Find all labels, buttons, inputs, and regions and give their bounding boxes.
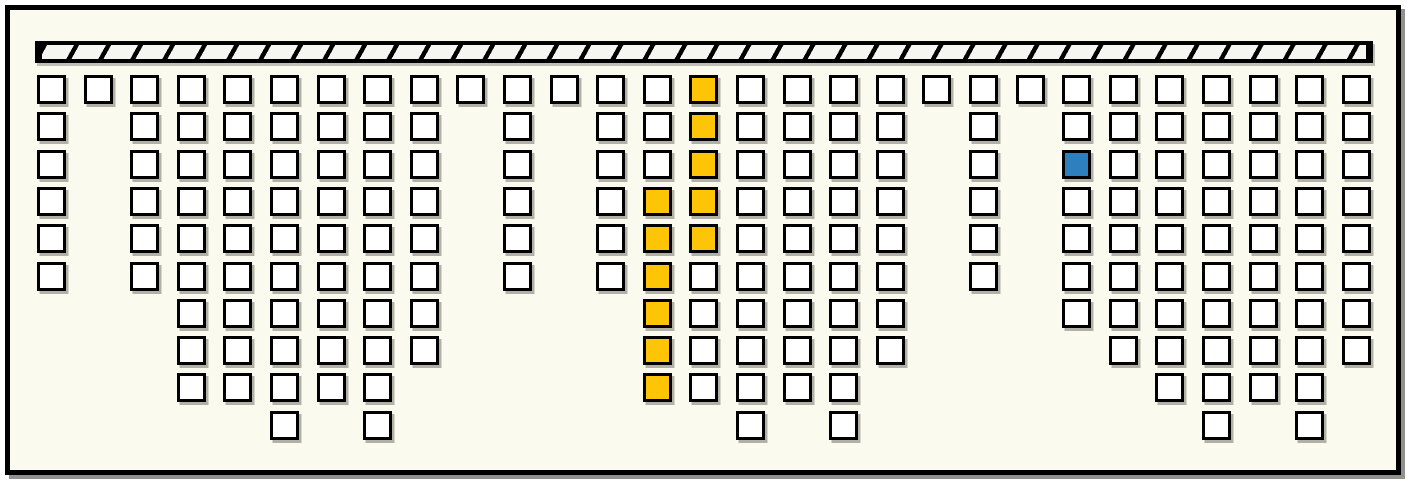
cell — [503, 187, 532, 216]
cell — [783, 224, 812, 253]
cell — [223, 299, 252, 328]
cell — [37, 262, 66, 291]
cell — [1295, 224, 1324, 253]
cell — [503, 224, 532, 253]
cell — [1062, 112, 1091, 141]
cell — [223, 150, 252, 179]
cell — [1202, 411, 1231, 440]
cell — [1109, 112, 1138, 141]
cell — [783, 262, 812, 291]
cell — [317, 187, 346, 216]
cell — [130, 150, 159, 179]
cell — [177, 112, 206, 141]
cell — [1295, 262, 1324, 291]
cell — [1155, 187, 1184, 216]
cell — [223, 187, 252, 216]
cell — [270, 411, 299, 440]
cell — [829, 299, 858, 328]
cell — [363, 262, 392, 291]
cell — [1109, 150, 1138, 179]
cell — [969, 75, 998, 104]
cell — [130, 187, 159, 216]
cell — [1155, 224, 1184, 253]
cell — [783, 373, 812, 402]
cell — [876, 262, 905, 291]
cell — [363, 187, 392, 216]
cell — [1155, 262, 1184, 291]
cell — [783, 150, 812, 179]
cell — [1295, 187, 1324, 216]
cell — [37, 224, 66, 253]
cell — [1062, 299, 1091, 328]
cell — [1342, 75, 1371, 104]
cell — [37, 75, 66, 104]
cell — [37, 112, 66, 141]
cell — [503, 262, 532, 291]
cell — [1202, 75, 1231, 104]
cell — [130, 112, 159, 141]
cell — [317, 150, 346, 179]
cell — [1295, 299, 1324, 328]
cell — [270, 224, 299, 253]
cell — [876, 299, 905, 328]
cell — [1109, 336, 1138, 365]
cell — [829, 75, 858, 104]
cell — [1342, 112, 1371, 141]
cell — [1202, 373, 1231, 402]
cell — [829, 150, 858, 179]
cell — [1295, 411, 1324, 440]
cell — [1295, 336, 1324, 365]
cell-grid — [0, 0, 1408, 483]
cell — [270, 373, 299, 402]
cell — [1155, 373, 1184, 402]
cell — [270, 187, 299, 216]
cell — [783, 112, 812, 141]
cell — [37, 187, 66, 216]
cell — [177, 75, 206, 104]
cell — [223, 75, 252, 104]
cell — [736, 75, 765, 104]
cell-highlight-yellow — [689, 150, 718, 179]
cell — [969, 262, 998, 291]
cell — [783, 187, 812, 216]
cell — [1249, 150, 1278, 179]
cell — [969, 224, 998, 253]
cell — [1249, 224, 1278, 253]
cell — [1342, 336, 1371, 365]
cell — [829, 336, 858, 365]
cell-highlight-yellow — [643, 373, 672, 402]
cell-highlight-yellow — [689, 224, 718, 253]
cell — [596, 262, 625, 291]
cell — [596, 75, 625, 104]
cell — [177, 150, 206, 179]
cell — [130, 262, 159, 291]
cell — [550, 75, 579, 104]
cell — [736, 299, 765, 328]
cell — [503, 75, 532, 104]
cell — [270, 262, 299, 291]
cell — [363, 373, 392, 402]
cell — [829, 411, 858, 440]
cell — [969, 187, 998, 216]
cell — [1062, 75, 1091, 104]
cell — [922, 75, 951, 104]
cell — [1249, 75, 1278, 104]
cell — [969, 112, 998, 141]
cell — [223, 373, 252, 402]
cell — [317, 75, 346, 104]
cell — [130, 75, 159, 104]
cell — [643, 150, 672, 179]
cell — [1249, 336, 1278, 365]
cell — [456, 75, 485, 104]
cell-highlight-yellow — [689, 112, 718, 141]
cell — [270, 75, 299, 104]
cell — [643, 75, 672, 104]
cell — [783, 299, 812, 328]
cell — [363, 336, 392, 365]
cell — [736, 224, 765, 253]
cell — [410, 187, 439, 216]
cell — [1062, 187, 1091, 216]
cell — [643, 112, 672, 141]
cell-highlight-yellow — [643, 187, 672, 216]
cell — [1249, 187, 1278, 216]
cell — [177, 299, 206, 328]
cell — [410, 299, 439, 328]
cell — [689, 336, 718, 365]
cell — [1155, 75, 1184, 104]
cell — [1295, 75, 1324, 104]
cell — [1202, 150, 1231, 179]
cell — [37, 150, 66, 179]
cell — [736, 336, 765, 365]
cell — [829, 224, 858, 253]
cell — [969, 150, 998, 179]
cell-highlight-blue — [1062, 150, 1091, 179]
cell — [1202, 187, 1231, 216]
cell — [829, 112, 858, 141]
cell — [829, 262, 858, 291]
cell — [783, 75, 812, 104]
cell — [317, 336, 346, 365]
cell — [596, 112, 625, 141]
cell — [736, 373, 765, 402]
cell — [363, 411, 392, 440]
cell — [410, 150, 439, 179]
cell — [736, 112, 765, 141]
cell — [876, 336, 905, 365]
cell — [177, 262, 206, 291]
cell-highlight-yellow — [689, 75, 718, 104]
cell — [177, 187, 206, 216]
cell — [1342, 299, 1371, 328]
cell — [1342, 187, 1371, 216]
cell — [1295, 112, 1324, 141]
cell — [270, 299, 299, 328]
cell — [177, 336, 206, 365]
cell — [876, 187, 905, 216]
cell — [1249, 299, 1278, 328]
cell — [1016, 75, 1045, 104]
cell — [1109, 224, 1138, 253]
cell — [1295, 150, 1324, 179]
cell — [317, 224, 346, 253]
cell-highlight-yellow — [689, 187, 718, 216]
cell — [736, 262, 765, 291]
cell — [1062, 224, 1091, 253]
cell — [270, 336, 299, 365]
cell — [317, 112, 346, 141]
cell — [363, 150, 392, 179]
cell — [317, 373, 346, 402]
cell — [270, 150, 299, 179]
cell — [736, 150, 765, 179]
cell — [876, 75, 905, 104]
cell — [1155, 112, 1184, 141]
cell — [876, 224, 905, 253]
cell — [317, 299, 346, 328]
cell — [410, 262, 439, 291]
cell-highlight-yellow — [643, 336, 672, 365]
cell — [1202, 262, 1231, 291]
cell — [596, 150, 625, 179]
cell — [596, 187, 625, 216]
cell — [1202, 224, 1231, 253]
cell — [689, 299, 718, 328]
cell — [876, 112, 905, 141]
cell — [1202, 336, 1231, 365]
cell — [1202, 112, 1231, 141]
cell — [363, 224, 392, 253]
cell-highlight-yellow — [643, 299, 672, 328]
cell — [363, 299, 392, 328]
cell — [223, 262, 252, 291]
cell — [1249, 262, 1278, 291]
cell — [1295, 373, 1324, 402]
cell — [1109, 187, 1138, 216]
cell — [503, 112, 532, 141]
cell — [223, 224, 252, 253]
cell — [1109, 75, 1138, 104]
cell — [1202, 299, 1231, 328]
cell — [503, 150, 532, 179]
cell — [223, 336, 252, 365]
cell — [783, 336, 812, 365]
cell — [1249, 373, 1278, 402]
cell — [1155, 150, 1184, 179]
cell — [177, 373, 206, 402]
cell-highlight-yellow — [643, 224, 672, 253]
cell — [177, 224, 206, 253]
cell — [410, 75, 439, 104]
cell — [596, 224, 625, 253]
cell — [1249, 112, 1278, 141]
cell — [410, 336, 439, 365]
figure-canvas — [0, 0, 1408, 483]
cell — [1155, 336, 1184, 365]
cell — [410, 224, 439, 253]
cell — [736, 187, 765, 216]
cell — [689, 262, 718, 291]
cell — [317, 262, 346, 291]
cell — [736, 411, 765, 440]
cell — [829, 373, 858, 402]
cell — [1109, 262, 1138, 291]
cell — [410, 112, 439, 141]
cell — [130, 224, 159, 253]
cell — [1342, 262, 1371, 291]
cell — [1155, 299, 1184, 328]
cell — [270, 112, 299, 141]
cell — [1109, 299, 1138, 328]
cell — [689, 373, 718, 402]
cell — [223, 112, 252, 141]
cell — [363, 112, 392, 141]
cell — [876, 150, 905, 179]
cell — [829, 187, 858, 216]
cell — [1342, 150, 1371, 179]
cell — [1062, 262, 1091, 291]
cell — [84, 75, 113, 104]
cell-highlight-yellow — [643, 262, 672, 291]
cell — [1342, 224, 1371, 253]
cell — [363, 75, 392, 104]
